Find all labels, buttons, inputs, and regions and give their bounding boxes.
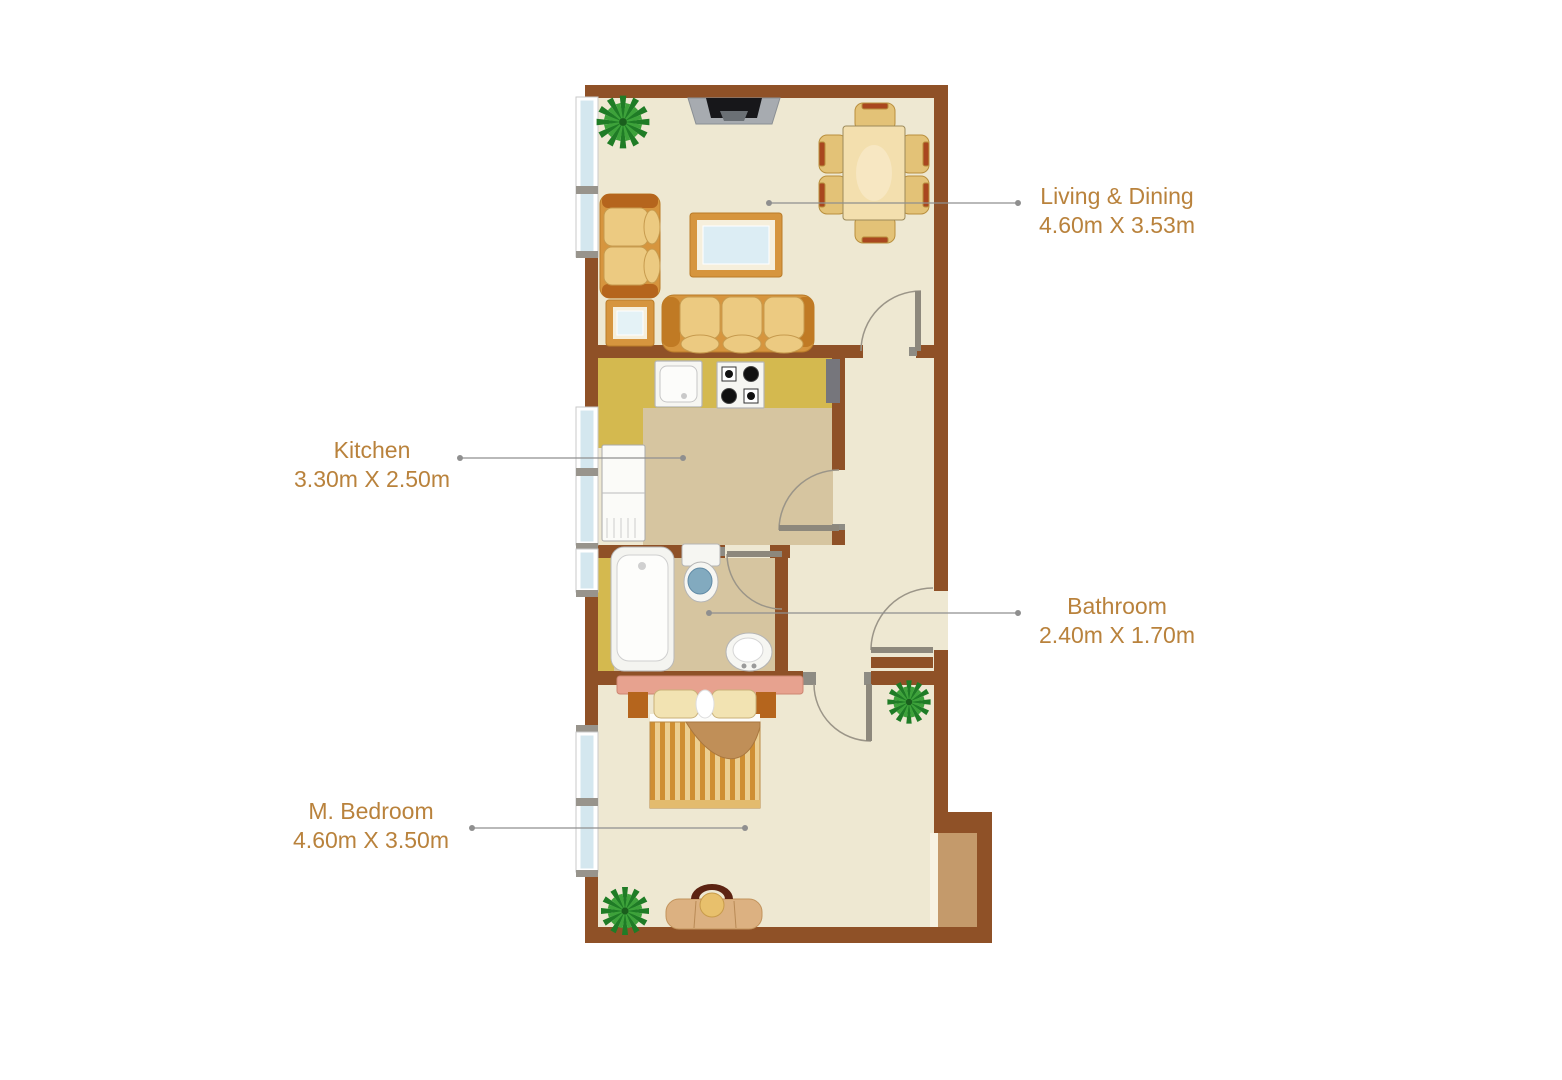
tv (688, 98, 780, 124)
label-kitchen: Kitchen 3.30m X 2.50m (267, 436, 477, 494)
sofa (662, 295, 814, 353)
kitchen-floor (643, 408, 833, 545)
floor-plan (0, 0, 1562, 1080)
room-name: Living & Dining (1012, 182, 1222, 211)
room-name: M. Bedroom (266, 797, 476, 826)
page: { "page": { "background_color": "#ffffff… (0, 0, 1562, 1080)
bathtub (611, 547, 674, 671)
label-m-bedroom: M. Bedroom 4.60m X 3.50m (266, 797, 476, 855)
bathroom-window (576, 543, 598, 597)
label-living-dining: Living & Dining 4.60m X 3.53m (1012, 182, 1222, 240)
stove (717, 362, 764, 408)
windows (576, 97, 598, 877)
kitchen-sink (655, 361, 702, 407)
room-dimensions: 3.30m X 2.50m (267, 465, 477, 494)
duct (826, 359, 840, 403)
balcony (938, 833, 977, 927)
side-table (606, 300, 654, 346)
refrigerator (602, 445, 645, 541)
room-dimensions: 4.60m X 3.53m (1012, 211, 1222, 240)
living-window (576, 97, 598, 258)
loveseat (600, 194, 660, 298)
kitchen-window (576, 407, 598, 545)
bedroom-window (576, 725, 598, 877)
toilet (682, 544, 720, 602)
room-dimensions: 2.40m X 1.70m (1012, 621, 1222, 650)
kitchen-counter (598, 357, 833, 408)
coffee-table (690, 213, 782, 277)
label-bathroom: Bathroom 2.40m X 1.70m (1012, 592, 1222, 650)
room-dimensions: 4.60m X 3.50m (266, 826, 476, 855)
room-name: Bathroom (1012, 592, 1222, 621)
wash-basin (726, 633, 772, 671)
room-name: Kitchen (267, 436, 477, 465)
